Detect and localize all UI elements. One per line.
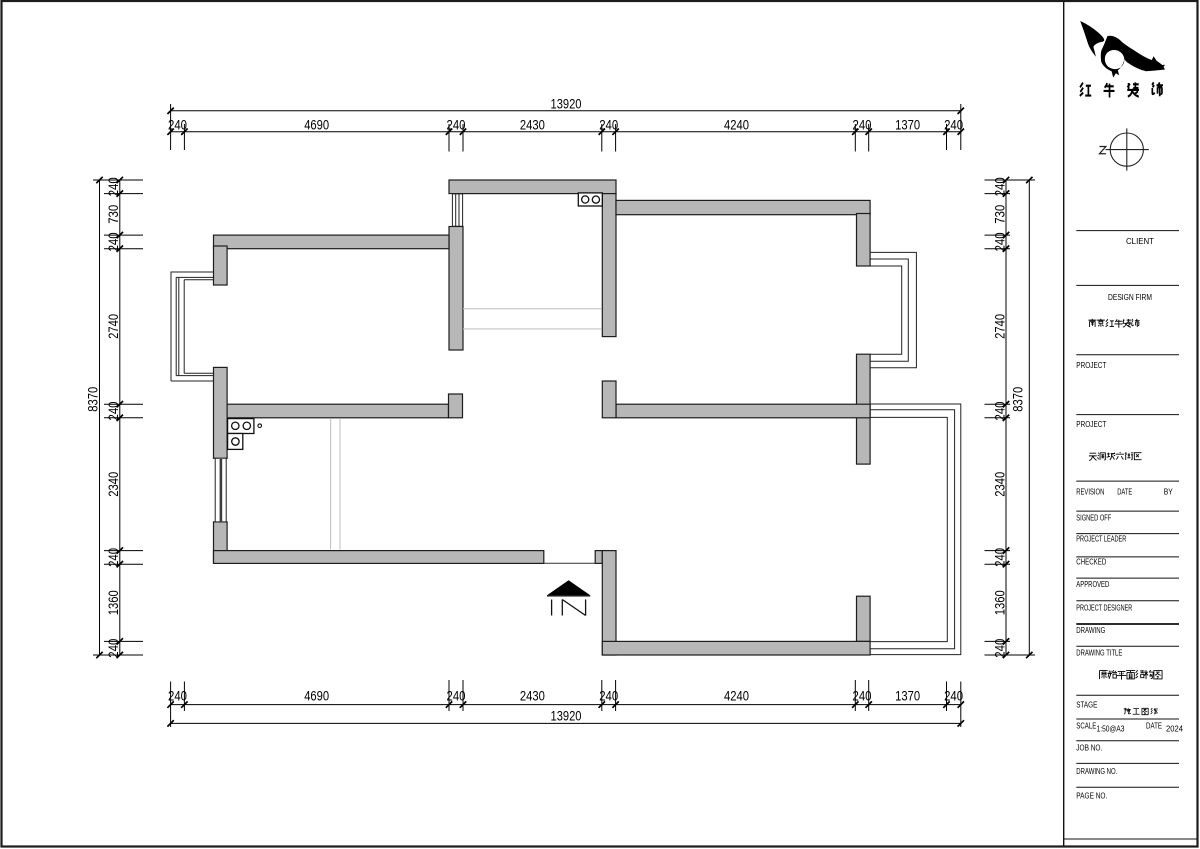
svg-text:8370: 8370 xyxy=(86,387,101,412)
svg-text:PROJECT LEADER: PROJECT LEADER xyxy=(1076,535,1126,544)
svg-text:240: 240 xyxy=(168,118,187,133)
svg-text:DRAWING TITLE: DRAWING TITLE xyxy=(1076,649,1122,658)
svg-text:REVISION: REVISION xyxy=(1076,488,1104,497)
svg-text:240: 240 xyxy=(168,689,187,704)
svg-text:CHECKED: CHECKED xyxy=(1076,558,1106,567)
svg-text:240: 240 xyxy=(447,689,466,704)
svg-text:2740: 2740 xyxy=(106,314,121,339)
svg-text:4690: 4690 xyxy=(304,689,329,704)
svg-text:240: 240 xyxy=(853,118,872,133)
svg-text:PROJECT: PROJECT xyxy=(1076,361,1106,370)
svg-text:PROJECT: PROJECT xyxy=(1076,420,1106,429)
svg-text:4690: 4690 xyxy=(304,118,329,133)
svg-text:240: 240 xyxy=(599,689,618,704)
svg-text:DRAWING: DRAWING xyxy=(1076,626,1105,635)
svg-text:BY: BY xyxy=(1164,488,1174,497)
svg-text:4240: 4240 xyxy=(724,118,749,133)
svg-text:13920: 13920 xyxy=(551,96,582,111)
svg-text:CLIENT: CLIENT xyxy=(1126,237,1154,246)
svg-text:DATE: DATE xyxy=(1146,722,1162,731)
svg-text:APPROVED: APPROVED xyxy=(1076,580,1109,589)
svg-text:1360: 1360 xyxy=(993,590,1008,615)
svg-text:240: 240 xyxy=(993,232,1008,251)
svg-text:1:50@A3: 1:50@A3 xyxy=(1097,725,1125,734)
svg-text:240: 240 xyxy=(944,118,963,133)
svg-text:1370: 1370 xyxy=(895,118,920,133)
svg-text:8370: 8370 xyxy=(1010,387,1025,412)
svg-text:13920: 13920 xyxy=(551,708,582,723)
svg-text:DESIGN FIRM: DESIGN FIRM xyxy=(1108,293,1152,302)
svg-text:240: 240 xyxy=(106,402,121,421)
svg-text:1370: 1370 xyxy=(895,689,920,704)
svg-text:240: 240 xyxy=(106,548,121,567)
svg-text:2340: 2340 xyxy=(993,472,1008,497)
svg-text:240: 240 xyxy=(599,118,618,133)
svg-text:240: 240 xyxy=(106,639,121,658)
svg-text:PROJECT DESIGNER: PROJECT DESIGNER xyxy=(1076,604,1132,613)
svg-text:2740: 2740 xyxy=(993,314,1008,339)
svg-text:STAGE: STAGE xyxy=(1076,701,1097,710)
svg-text:DATE: DATE xyxy=(1117,488,1132,497)
svg-text:2430: 2430 xyxy=(520,118,545,133)
svg-text:JOB NO.: JOB NO. xyxy=(1076,744,1102,753)
svg-text:240: 240 xyxy=(993,639,1008,658)
svg-text:240: 240 xyxy=(447,118,466,133)
svg-text:PAGE NO.: PAGE NO. xyxy=(1076,792,1107,801)
svg-text:2340: 2340 xyxy=(106,472,121,497)
svg-text:730: 730 xyxy=(106,205,121,224)
svg-text:SIGNED OFF: SIGNED OFF xyxy=(1076,514,1111,523)
svg-text:240: 240 xyxy=(993,402,1008,421)
svg-text:240: 240 xyxy=(106,232,121,251)
svg-text:1360: 1360 xyxy=(106,590,121,615)
svg-text:240: 240 xyxy=(853,689,872,704)
svg-text:SCALE: SCALE xyxy=(1076,722,1096,731)
svg-text:240: 240 xyxy=(993,548,1008,567)
svg-text:240: 240 xyxy=(993,177,1008,196)
svg-text:2430: 2430 xyxy=(520,689,545,704)
svg-text:2024: 2024 xyxy=(1166,725,1184,734)
svg-text:730: 730 xyxy=(993,205,1008,224)
svg-text:240: 240 xyxy=(106,177,121,196)
svg-text:4240: 4240 xyxy=(724,689,749,704)
svg-text:DRAWING NO.: DRAWING NO. xyxy=(1076,767,1117,776)
svg-text:240: 240 xyxy=(944,689,963,704)
